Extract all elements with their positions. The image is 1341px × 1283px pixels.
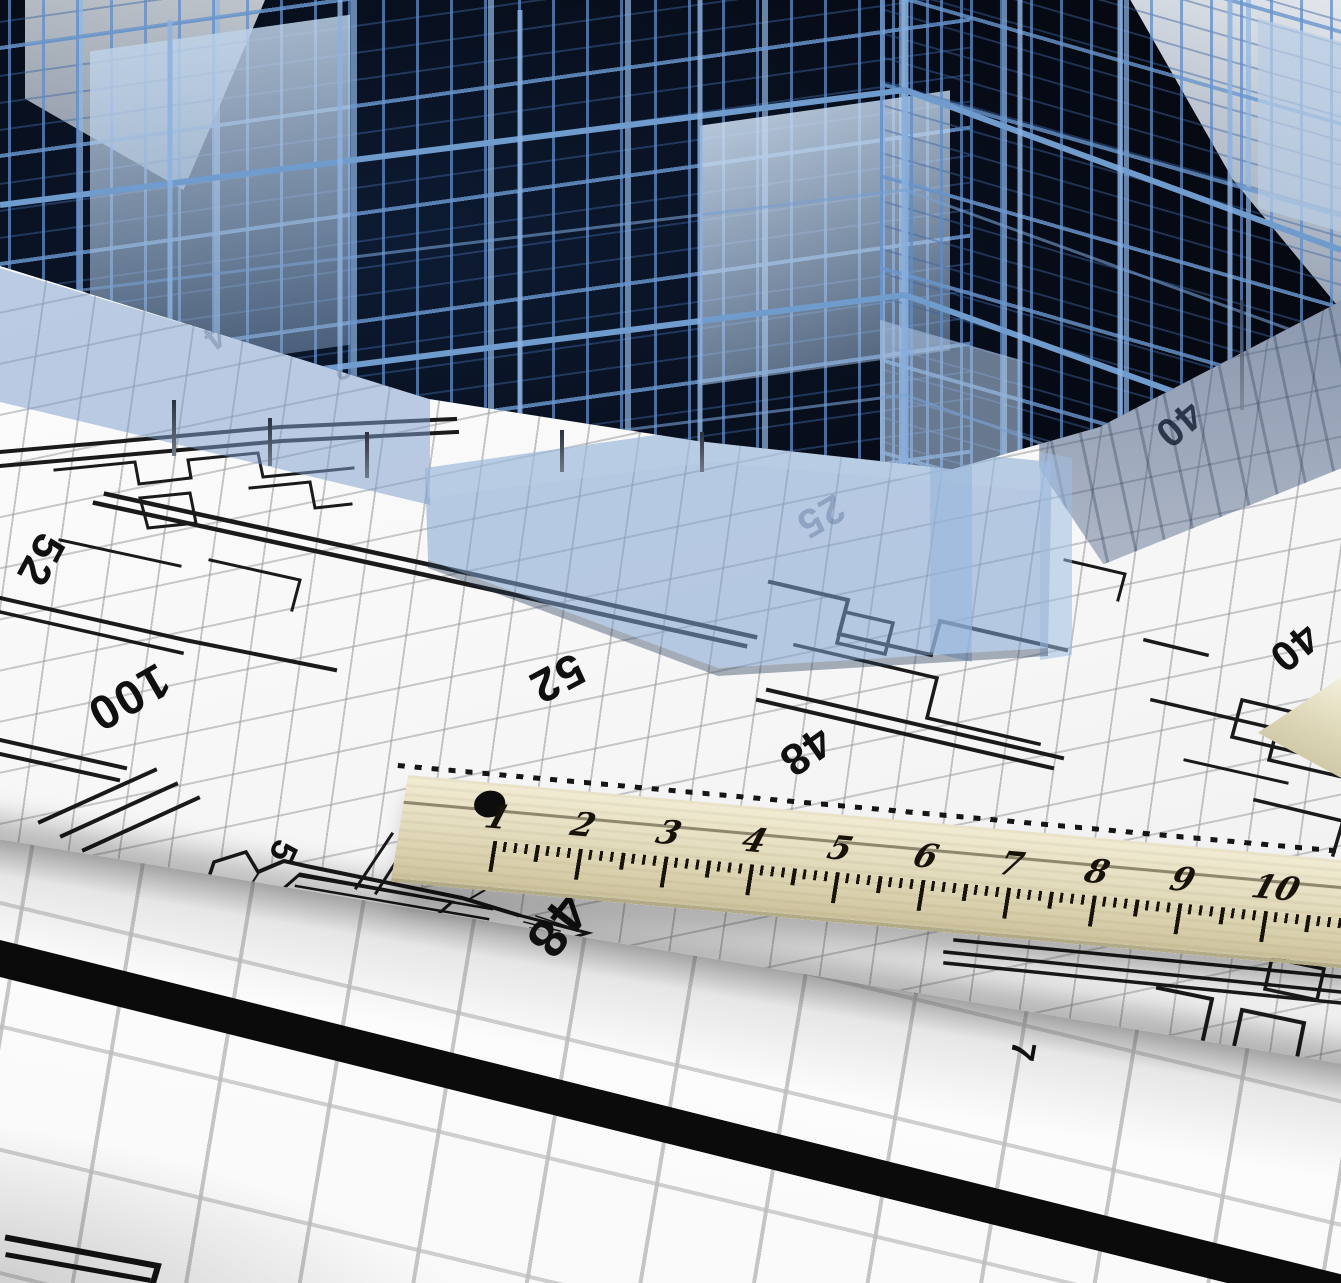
- ruler-mark: 6: [909, 836, 944, 876]
- column-post: [560, 430, 564, 472]
- ruler-mark: 2: [566, 805, 601, 845]
- column-post: [365, 432, 369, 478]
- column-post: [172, 400, 176, 456]
- ruler-mark: 8: [1080, 851, 1115, 891]
- ruler-mark: 5: [823, 828, 858, 868]
- column-post: [268, 418, 272, 466]
- ruler-mark: 10: [1247, 867, 1304, 909]
- ruler-mark: 4: [737, 820, 772, 860]
- ruler-mark: 11: [1337, 875, 1341, 917]
- column-post: [700, 432, 704, 472]
- blueprint-scene: 34 52 25: [0, 0, 1341, 1283]
- ruler-mark: 7: [994, 843, 1029, 883]
- ruler-mark: 3: [652, 812, 687, 852]
- ruler-mark: 9: [1166, 859, 1201, 899]
- column-post: [1240, 300, 1244, 410]
